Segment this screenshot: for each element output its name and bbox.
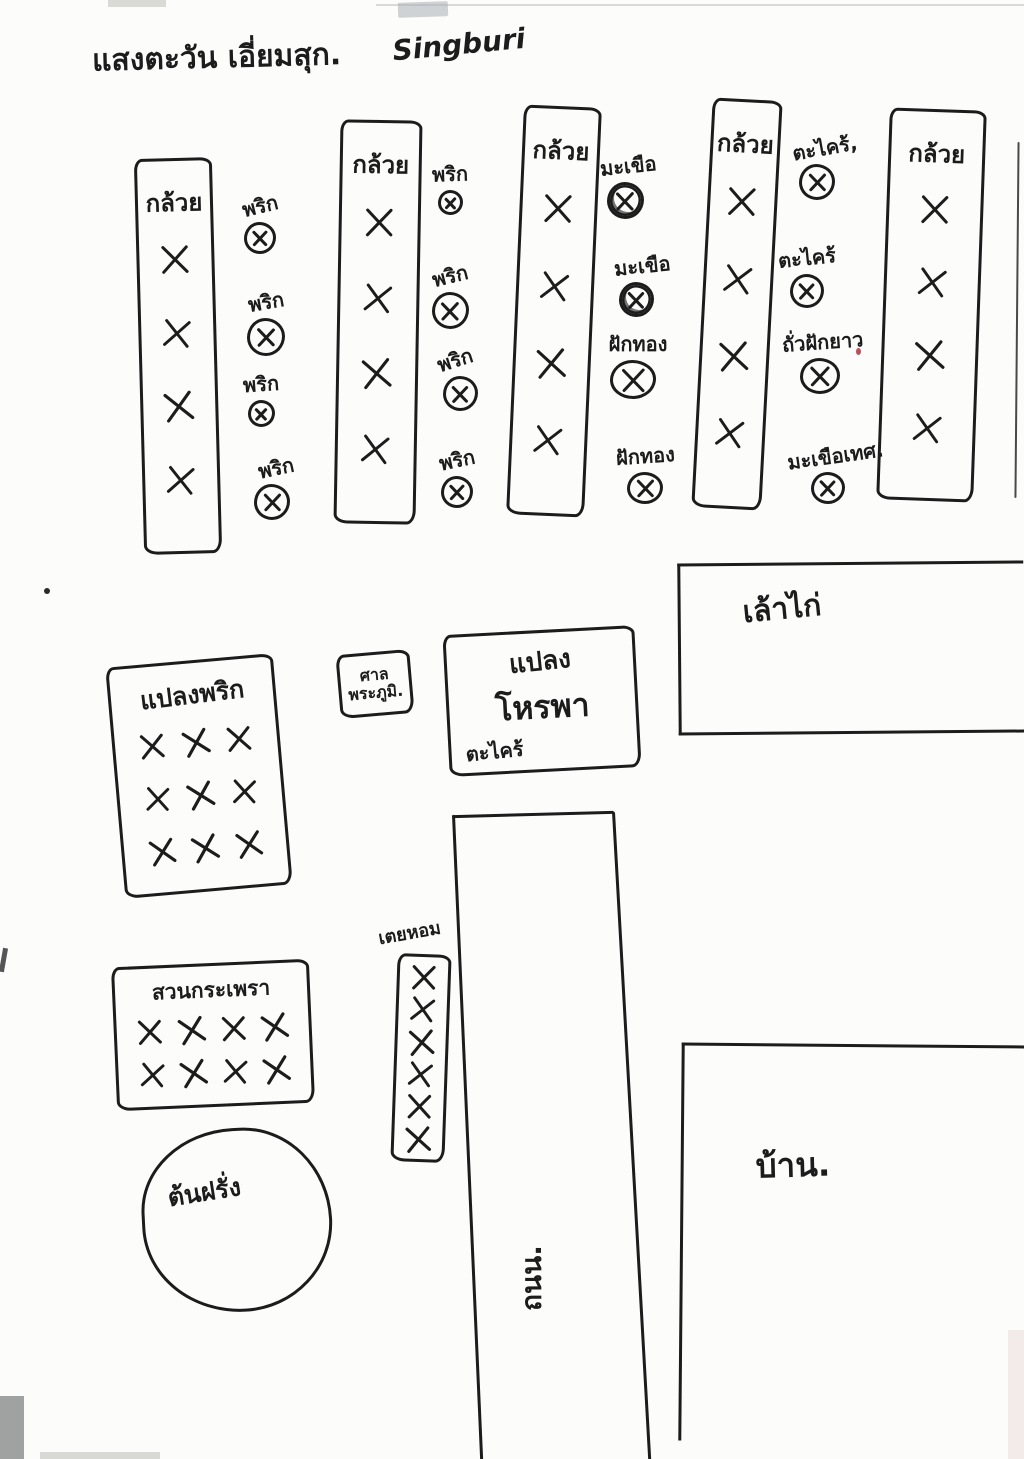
- basil-plot-label-line3: ตะไคร้: [464, 733, 525, 771]
- crop-label: พริก: [255, 449, 297, 488]
- banana-plants: [509, 169, 596, 515]
- x-plant-marker: [403, 1123, 434, 1154]
- x-plant-marker: [912, 337, 948, 373]
- circled-x-marker: [443, 376, 478, 411]
- crop-label: ถั่วฝักยาว: [781, 323, 864, 361]
- circled-x-marker: [627, 472, 663, 504]
- x-plant-marker: [542, 192, 575, 225]
- circled-x-marker: [607, 182, 644, 219]
- crop-label: ฝักทอง: [615, 438, 676, 474]
- x-plant-marker: [720, 261, 756, 297]
- banana-row-label: กล้วย: [352, 145, 409, 185]
- x-plant-marker: [183, 777, 219, 813]
- circled-x-marker: [432, 292, 469, 329]
- x-plant-marker: [254, 407, 268, 421]
- x-plant-marker: [798, 282, 816, 300]
- x-plant-marker: [626, 290, 645, 309]
- road-top-edge: [452, 811, 614, 818]
- intercrop-item: ตะไคร้,: [770, 132, 880, 200]
- crop-label: พริก: [431, 157, 468, 190]
- scan-tint-right: [1008, 1330, 1024, 1459]
- circled-x-marker: [441, 476, 473, 508]
- x-plant-marker: [440, 300, 460, 320]
- x-plant-marker: [232, 827, 266, 861]
- circled-x-marker: [248, 400, 275, 427]
- x-plant-marker: [159, 242, 192, 275]
- house-label: บ้าน.: [755, 1138, 831, 1193]
- crop-label: ตะไคร้,: [790, 127, 860, 170]
- red-speck: [856, 348, 861, 355]
- scan-smudge-bottom: [40, 1452, 160, 1459]
- holy-basil-plants: [122, 1003, 306, 1098]
- circled-x-marker: [790, 274, 824, 308]
- crop-label: พริก: [433, 339, 477, 381]
- pandan-plants: [394, 960, 449, 1156]
- intercrop-item: พริก: [410, 344, 500, 411]
- intercrop-item: พริก: [216, 368, 306, 427]
- paper-sketch: แสงตะวัน เอี่ยมสุก. Singburi กล้วย กล้วย…: [0, 0, 1024, 1459]
- x-plant-marker: [178, 724, 214, 760]
- intercrop-item: มะเขือเทศ.: [780, 440, 890, 504]
- intercrop-item: มะเขือ: [592, 250, 692, 317]
- spirit-house: ศาล พระภูมิ.: [335, 649, 414, 719]
- x-plant-marker: [359, 355, 395, 391]
- x-plant-marker: [136, 1017, 165, 1046]
- x-plant-marker: [530, 422, 566, 458]
- scan-corner-bottom-left: [0, 1396, 24, 1459]
- banana-row-label: กล้วย: [716, 123, 775, 165]
- x-plant-marker: [145, 835, 179, 869]
- x-plant-marker: [407, 994, 438, 1025]
- scan-stamp-smudge: [398, 1, 448, 18]
- x-plant-marker: [174, 1012, 209, 1047]
- crop-label: ฝักทอง: [609, 328, 668, 360]
- x-plant-marker: [915, 264, 951, 300]
- crop-label: พริก: [429, 256, 472, 296]
- x-plant-marker: [221, 1057, 250, 1086]
- banana-plants: [694, 162, 776, 508]
- intercrop-item: พริก: [215, 190, 305, 254]
- x-plant-marker: [259, 1052, 294, 1087]
- holy-basil-garden: สวนกระเพรา: [111, 959, 315, 1111]
- x-plant-marker: [807, 172, 827, 192]
- x-plant-marker: [143, 785, 171, 813]
- crop-label: มะเขือ: [598, 147, 657, 185]
- x-plant-marker: [255, 326, 276, 347]
- house: บ้าน.: [678, 1043, 1024, 1444]
- circled-x-marker: [799, 164, 835, 200]
- banana-plants: [879, 171, 981, 499]
- crop-label: พริก: [245, 283, 286, 321]
- x-plant-marker: [160, 316, 194, 350]
- chicken-coop: เล้าไก่: [677, 560, 1024, 735]
- banana-plants: [337, 183, 419, 521]
- intercrop-item: พริก: [412, 444, 502, 508]
- page-edge-line: [1014, 142, 1019, 498]
- circled-x-marker: [254, 484, 290, 520]
- x-plant-marker: [161, 388, 198, 425]
- x-plant-marker: [164, 463, 198, 497]
- x-plant-marker: [219, 1013, 248, 1042]
- scan-smudge-top-left: [108, 0, 166, 7]
- circled-x-marker: [800, 358, 840, 394]
- x-plant-marker: [409, 963, 438, 992]
- circled-x-marker: [610, 360, 656, 399]
- x-plant-marker: [138, 730, 168, 760]
- chili-plot: แปลงพริก: [105, 653, 293, 899]
- x-plant-marker: [187, 830, 223, 866]
- circled-x-marker: [619, 282, 654, 317]
- road-left-line: [452, 815, 483, 1459]
- x-plant-marker: [176, 1056, 211, 1091]
- x-plant-marker: [358, 432, 393, 467]
- x-plant-marker: [918, 193, 951, 226]
- title-latin: Singburi: [391, 22, 528, 82]
- x-plant-marker: [726, 185, 760, 219]
- intercrop-item: ตะไคร้: [752, 242, 862, 308]
- x-plant-marker: [809, 366, 831, 386]
- circled-x-marker: [438, 190, 463, 215]
- x-plant-marker: [819, 479, 837, 496]
- sketch-title: แสงตะวัน เอี่ยมสุก. Singburi: [91, 26, 526, 84]
- x-plant-marker: [230, 777, 258, 805]
- guava-tree-label: ต้นฝรั่ง: [165, 1167, 244, 1218]
- x-plant-marker: [405, 1059, 436, 1090]
- basil-plot-label-line1: แปลง: [507, 638, 573, 685]
- crop-label: พริก: [436, 441, 478, 480]
- banana-row-label: กล้วย: [145, 182, 203, 222]
- x-plant-marker: [262, 492, 282, 512]
- banana-row-label: กล้วย: [908, 133, 966, 174]
- crop-label: ตะไคร้: [777, 239, 838, 277]
- intercrop-item: พริก: [221, 286, 311, 356]
- x-plant-marker: [712, 415, 748, 451]
- crop-label: พริก: [242, 367, 280, 401]
- x-plant-marker: [405, 1092, 434, 1121]
- x-plant-marker: [363, 206, 396, 239]
- chili-plants: [121, 709, 280, 881]
- banana-row-5: กล้วย: [876, 107, 987, 502]
- scan-edge-line-top: [376, 4, 1024, 6]
- intercrop-item: มะเขือ: [578, 150, 678, 219]
- ink-dot: [44, 588, 50, 594]
- circled-x-marker: [244, 222, 276, 254]
- x-plant-marker: [224, 723, 254, 753]
- crop-label: มะเขือเทศ.: [785, 433, 885, 478]
- intercrop-item: ฝักทอง: [588, 328, 688, 399]
- x-plant-marker: [251, 229, 268, 246]
- x-plant-marker: [258, 1009, 293, 1044]
- x-plant-marker: [635, 479, 655, 496]
- circled-x-marker: [247, 318, 285, 356]
- basil-plot-label-line2: โหรพา: [494, 680, 591, 736]
- circled-x-marker: [811, 472, 845, 504]
- basil-plot: แปลง โหรพา ตะไคร้: [442, 625, 641, 777]
- guava-tree: ต้นฝรั่ง: [137, 1123, 336, 1317]
- x-plant-marker: [448, 483, 465, 500]
- x-plant-marker: [444, 196, 457, 209]
- crop-label: พริก: [239, 186, 282, 226]
- road-right-line: [612, 812, 651, 1459]
- intercrop-item: พริก: [405, 260, 495, 329]
- chicken-coop-label: เล้าไก่: [741, 582, 824, 636]
- x-plant-marker: [406, 1026, 437, 1057]
- edge-mark-left: [0, 948, 8, 973]
- banana-row-1: กล้วย: [134, 157, 222, 555]
- x-plant-marker: [361, 280, 396, 315]
- intercrop-item: พริก: [231, 452, 321, 520]
- spirit-house-label-line2: พระภูมิ.: [348, 682, 404, 705]
- road-label: ถนน.: [510, 1223, 554, 1333]
- x-plant-marker: [138, 1060, 167, 1089]
- pandan-strip: [390, 953, 451, 1163]
- x-plant-marker: [534, 345, 569, 380]
- x-plant-marker: [450, 384, 469, 403]
- intercrop-item: พริก: [405, 158, 495, 215]
- intercrop-item: ถั่วฝักยาว: [768, 326, 878, 394]
- title-thai: แสงตะวัน เอี่ยมสุก.: [91, 31, 341, 85]
- pandan-label: เตยหอม: [376, 913, 443, 952]
- crop-label: มะเขือ: [612, 247, 671, 285]
- x-plant-marker: [537, 268, 573, 304]
- x-plant-marker: [620, 369, 646, 391]
- holy-basil-label: สวนกระเพรา: [151, 971, 271, 1009]
- x-plant-marker: [615, 190, 635, 210]
- banana-plants: [139, 221, 220, 552]
- x-plant-marker: [717, 339, 752, 374]
- x-plant-marker: [909, 410, 945, 446]
- intercrop-item: ฝักทอง: [595, 440, 695, 504]
